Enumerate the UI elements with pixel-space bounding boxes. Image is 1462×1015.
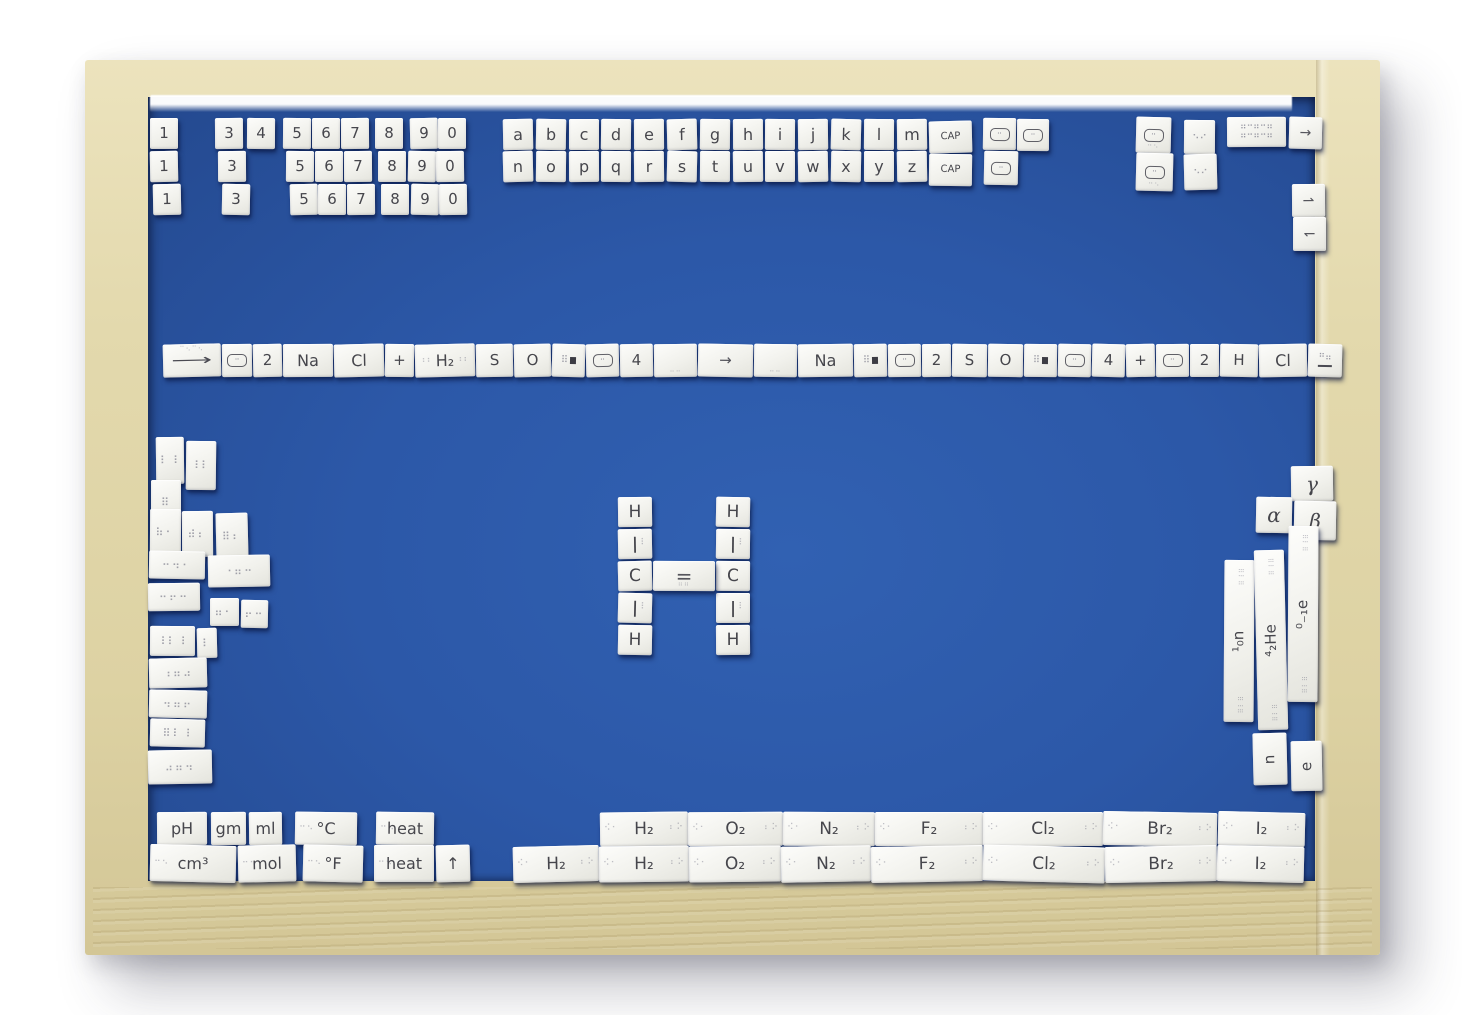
braille-tile[interactable]: ⠿⠆ <box>215 513 248 560</box>
tile-label: 8 <box>390 192 400 207</box>
tile-label: CAP <box>940 132 960 142</box>
equation-tile[interactable]: Cl <box>334 343 385 377</box>
tile-label: ml <box>255 820 275 836</box>
particle-tile[interactable]: n <box>1252 733 1287 786</box>
equation-tile[interactable]: ⠒ <box>1058 344 1092 378</box>
braille-chemistry-board-photo: 1345678901356789013567890abcdefghijklmno… <box>0 0 1462 1015</box>
particle-tile[interactable]: e <box>1291 741 1323 792</box>
unit-tile[interactable]: heat⠒⠢ <box>376 812 434 846</box>
tile-label: α <box>1267 505 1281 525</box>
letter-tile[interactable]: n <box>503 151 534 183</box>
letter-tile[interactable]: x <box>831 151 862 183</box>
equation-tile[interactable]: H₂⠰⠆⠰⠆ <box>415 343 476 377</box>
equation-tile[interactable]: 4 <box>1092 344 1126 378</box>
braille-dots: ⠪⠂ <box>1222 823 1237 833</box>
equation-tile[interactable]: ⠤⠤ <box>654 344 697 378</box>
unit-tile[interactable]: cm³⠒⠢ <box>150 844 237 883</box>
equation-tile[interactable]: ⠒ <box>888 344 921 377</box>
symbol-tile[interactable]: ↽ <box>1293 217 1326 251</box>
tile-label: H₂ <box>546 855 566 872</box>
braille-tile[interactable]: ⠾⠆ <box>182 511 213 557</box>
unit-tile[interactable]: ml <box>249 812 282 845</box>
tile-label: H <box>628 631 641 648</box>
braille-dots: ⠇ <box>738 539 746 549</box>
tile-label: gm <box>216 820 242 836</box>
braille-tile[interactable]: ⠷⠂ <box>150 509 181 555</box>
tile-label: 0 <box>448 192 458 207</box>
letter-tile[interactable]: o <box>536 151 566 182</box>
molecule-tile[interactable]: O₂⠪⠂⠆⠕ <box>688 812 783 847</box>
number-tile[interactable]: 8 <box>378 151 406 182</box>
isotope-tile[interactable]: ⁴₂He⠿⠇⠿⠿⠸⠿ <box>1254 550 1288 731</box>
unit-tile[interactable]: °C⠒⠢ <box>295 812 357 846</box>
braille-dots: ⠆⠕ <box>852 858 867 868</box>
tile-label: 1 <box>159 159 169 174</box>
unit-tile[interactable]: mol⠒⠢ <box>238 844 297 882</box>
unit-tile[interactable]: °F⠒⠢ <box>303 844 364 882</box>
structure-tile[interactable]: C <box>716 561 750 591</box>
braille-dots: ⠆⠕ <box>1286 825 1301 835</box>
tile-label: k <box>841 126 851 142</box>
number-tile[interactable]: 5 <box>286 151 314 182</box>
tile-label: heat <box>386 856 422 872</box>
equation-tile[interactable]: S <box>952 344 987 377</box>
cap-tile[interactable]: CAP <box>929 120 973 153</box>
number-tile[interactable]: 3 <box>222 184 251 216</box>
tile-label: Na <box>815 352 837 368</box>
braille-dots: ⠿⠇⠿ <box>1300 534 1308 552</box>
number-tile[interactable]: 5 <box>283 118 311 149</box>
tile-label: t <box>712 158 718 174</box>
molecule-tile[interactable]: Cl₂⠪⠂⠆⠕ <box>983 812 1103 846</box>
equation-tile[interactable]: ⠿ <box>552 344 586 378</box>
braille-dots: ⠪⠂ <box>517 860 532 870</box>
letter-tile[interactable]: f <box>667 119 698 151</box>
symbol-tile[interactable]: ⠶⠒⠶⠒⠶ ⠶⠒⠶⠒⠶ <box>1227 117 1286 147</box>
number-tile[interactable]: 8 <box>375 118 403 149</box>
tile-label: 7 <box>353 159 363 174</box>
number-tile[interactable]: 4 <box>247 118 275 149</box>
equation-tile[interactable]: + <box>1126 344 1156 378</box>
braille-dots: ⠪⠂ <box>692 824 707 834</box>
number-tile[interactable]: 1 <box>150 118 178 149</box>
tile-label: I₂ <box>1254 855 1266 872</box>
number-tile[interactable]: 9 <box>408 151 437 183</box>
braille-tile[interactable]: ⠇ <box>197 628 218 658</box>
tile-label: d <box>611 126 621 142</box>
letter-tile[interactable]: c <box>569 119 599 150</box>
molecule-tile[interactable]: N₂⠪⠂⠆⠕ <box>781 845 872 883</box>
symbol-tile[interactable]: ⠒⠒⠢ <box>1136 153 1174 192</box>
number-tile[interactable]: 9 <box>410 118 439 150</box>
filled-square-symbol <box>570 357 576 364</box>
letter-tile[interactable]: s <box>667 151 698 183</box>
molecule-tile[interactable]: I₂⠪⠂⠆⠕ <box>1218 811 1306 847</box>
letter-tile[interactable]: d <box>601 119 631 150</box>
equation-tile[interactable]: H <box>1220 344 1259 378</box>
braille-dots: ⠪⠂ <box>879 824 894 834</box>
number-tile[interactable]: 7 <box>347 184 375 215</box>
tile-label: e <box>1299 761 1314 771</box>
symbol-tile[interactable]: ⠢⠔ <box>1184 154 1218 191</box>
equation-tile[interactable]: ⠿ <box>854 344 888 378</box>
tile-label: H₂ <box>634 855 654 872</box>
tile-label: N₂ <box>819 820 839 837</box>
letter-tile[interactable]: q <box>601 151 631 182</box>
tile-label: ⠖⠒ <box>244 608 264 619</box>
tile-label: ⠶⠒⠶⠒⠶ ⠶⠒⠶⠒⠶ <box>1240 123 1273 141</box>
tile-label: ⠿ <box>161 497 171 508</box>
equation-tile[interactable]: O <box>988 344 1023 377</box>
tile-label: ⠿ <box>1033 355 1040 365</box>
braille-dots: ⠆⠕ <box>1198 825 1213 835</box>
braille-tile[interactable]: ⠰⠶⠴ <box>149 657 208 688</box>
tile-label: ⠲⠶⠖ <box>163 698 193 710</box>
tile-label: ⠿⠇⠸ <box>162 727 192 739</box>
tile-label: γ <box>1306 473 1318 493</box>
tile-label: z <box>908 158 917 174</box>
braille-tile[interactable]: ⠒⠖⠒ <box>148 583 200 612</box>
symbol-tile[interactable]: ⠒⠒⠢ <box>1136 117 1172 154</box>
molecule-tile[interactable]: N₂⠪⠂⠆⠕ <box>783 812 875 847</box>
tile-label: 3 <box>224 126 234 141</box>
tile-label: 4 <box>1104 353 1114 368</box>
tile-label: H <box>1233 353 1245 368</box>
equation-tile[interactable]: ⠒ <box>586 344 620 378</box>
structure-tile[interactable]: H <box>618 625 653 656</box>
braille-tile[interactable]: ⠴⠶⠲ <box>148 749 213 784</box>
number-tile[interactable]: 6 <box>315 151 343 182</box>
braille-dots: ⠆⠕ <box>964 824 979 834</box>
number-tile[interactable]: 3 <box>215 118 243 149</box>
tile-label: ⁰₋₁e <box>1295 599 1310 628</box>
tile-label: ¹₀n <box>1231 630 1246 652</box>
letter-tile[interactable]: a <box>503 119 534 151</box>
braille-dots: ⠒⠢ <box>1148 181 1160 189</box>
braille-tile[interactable]: ⠇⠸ <box>156 437 185 484</box>
letter-tile[interactable]: k <box>831 119 862 151</box>
equation-tile[interactable]: 4 <box>620 344 654 378</box>
braille-dots: ⠇ <box>738 603 746 613</box>
tile-label: O₂ <box>725 855 745 872</box>
tile-label: ⠇ <box>202 637 212 648</box>
braille-dots: ⠰⠆ <box>456 355 471 365</box>
isotope-tile[interactable]: ¹₀n⠿⠇⠿⠿⠸⠿ <box>1224 560 1255 722</box>
letter-tile[interactable]: l <box>864 119 894 150</box>
tile-label: w <box>806 158 819 174</box>
number-tile[interactable]: 6 <box>318 184 346 215</box>
symbol-tile[interactable]: ⠒ <box>984 151 1019 186</box>
tile-label: = <box>676 566 693 586</box>
braille-tile[interactable]: ⠸⠇ <box>186 441 217 490</box>
rounded-rect-symbol: ⠒ <box>1162 354 1182 367</box>
number-tile[interactable]: 1 <box>150 151 179 183</box>
tile-label: | <box>730 600 736 616</box>
tile-label: l <box>877 126 882 142</box>
tile-label: °C <box>316 820 335 836</box>
structure-tile[interactable]: |⠇ <box>716 529 750 559</box>
tile-label: q <box>611 158 621 174</box>
symbol-tile[interactable]: ⠒ <box>1017 119 1049 151</box>
equation-tile[interactable]: Na <box>798 344 853 378</box>
tile-label: S <box>965 353 975 368</box>
equation-tile[interactable]: + <box>385 344 414 377</box>
braille-dots: ⠪⠂ <box>987 824 1002 834</box>
braille-dots: ⠆⠕ <box>762 859 777 869</box>
equation-tile[interactable]: Cl <box>1259 344 1308 378</box>
braille-tile[interactable]: ⠿⠇⠸ <box>150 718 206 747</box>
tile-label: 6 <box>321 126 331 141</box>
rounded-rect-symbol: ⠒ <box>1144 165 1164 178</box>
unit-tile[interactable]: ↑ <box>436 845 471 883</box>
tile-label: p <box>579 158 589 174</box>
tile-label: C <box>629 567 641 584</box>
tile-label: O <box>526 353 538 368</box>
tile-label: ⠰⠶⠴ <box>163 667 193 679</box>
tile-label: + <box>1134 353 1147 368</box>
braille-dots: ⠆⠕ <box>580 858 595 868</box>
letter-tile[interactable]: p <box>569 151 599 182</box>
tile-label: °F <box>324 855 342 871</box>
braille-dots: ⠪⠂ <box>604 824 619 834</box>
tile-label: g <box>710 126 720 142</box>
tile-label: Cl₂ <box>1032 855 1056 873</box>
braille-dots: ⠇ <box>640 539 648 549</box>
letter-tile[interactable]: z <box>897 151 928 183</box>
light-reflection-strip <box>150 95 1292 112</box>
tile-label: ⠛⠶ <box>1318 354 1332 367</box>
tile-label: 5 <box>292 126 302 141</box>
braille-dots: ⠒⠢ <box>307 858 322 868</box>
tile-label: a <box>513 126 523 142</box>
rounded-rect-symbol: ⠒ <box>1143 128 1163 141</box>
structure-tile[interactable]: H <box>716 625 750 655</box>
tile-label: o <box>546 158 556 174</box>
tile-label: u <box>743 158 753 174</box>
braille-dots: ⠪⠂ <box>785 860 800 870</box>
tile-label: 0 <box>445 159 455 174</box>
tile-label: ↽ <box>1304 227 1316 241</box>
letter-tile[interactable]: w <box>798 151 829 183</box>
tile-label: 4 <box>256 126 266 141</box>
braille-dots: ⠪⠂ <box>693 859 708 869</box>
letter-tile[interactable]: b <box>536 119 567 151</box>
number-tile[interactable]: 0 <box>439 184 467 215</box>
tile-label: ⠒⠖⠒ <box>159 591 189 602</box>
number-tile[interactable]: 3 <box>218 151 246 182</box>
braille-dots: ⠿⠇⠿ <box>1235 568 1243 586</box>
braille-tile[interactable]: ⠐⠶⠒ <box>208 554 271 587</box>
braille-dots: ⠿⠸⠿ <box>1235 696 1243 714</box>
braille-dots: ⠆⠕ <box>670 859 685 869</box>
tile-label: 3 <box>227 159 237 174</box>
tile-label: 1 <box>162 192 172 207</box>
equation-tile[interactable]: ⠒ <box>222 344 252 377</box>
equation-tile[interactable]: Na <box>283 344 333 377</box>
tile-label: Na <box>297 352 319 368</box>
filled-square-symbol <box>872 357 878 364</box>
letter-tile[interactable]: i <box>765 119 795 150</box>
letter-tile[interactable]: y <box>864 151 894 182</box>
tile-label: n <box>513 158 524 174</box>
tile-label: mol <box>252 855 282 872</box>
equation-tile[interactable]: ⠛⠶ <box>1308 344 1343 378</box>
equation-tile[interactable]: 2 <box>1190 344 1219 377</box>
braille-dots: ⠿⠇⠿ <box>1265 558 1273 577</box>
tile-label: 9 <box>419 126 429 141</box>
molecule-tile[interactable]: H₂⠪⠂⠆⠕ <box>600 811 688 846</box>
molecule-tile[interactable]: H₂⠪⠂⠆⠕ <box>513 845 600 883</box>
braille-tile[interactable]: ⠒⠲⠂ <box>149 550 206 579</box>
tile-label: j <box>811 126 816 142</box>
tile-label: ⠐⠶⠒ <box>224 565 254 577</box>
isotope-tile[interactable]: ⁰₋₁e⠿⠇⠿⠿⠸⠿ <box>1287 526 1318 702</box>
braille-tile[interactable]: ⠖⠒ <box>241 600 269 628</box>
number-tile[interactable]: 1 <box>153 184 182 216</box>
rounded-rect-symbol: ⠒ <box>991 161 1011 174</box>
tile-label: ⠒⠲⠂ <box>162 559 192 571</box>
unit-tile[interactable]: gm <box>211 812 246 845</box>
letter-tile[interactable]: t <box>700 151 730 182</box>
tile-label: c <box>580 127 589 143</box>
number-tile[interactable]: 8 <box>381 184 409 215</box>
number-tile[interactable]: 7 <box>341 118 369 149</box>
braille-tile[interactable]: ⠲⠶⠖ <box>149 689 208 718</box>
braille-dots: ⠆⠕ <box>1285 860 1300 870</box>
tile-label: H <box>628 503 641 520</box>
tile-label: s <box>678 158 687 174</box>
tile-label: ⠷⠂ <box>155 526 175 537</box>
tile-label: H <box>726 503 739 520</box>
letter-tile[interactable]: h <box>733 119 763 150</box>
braille-dots: ⠆⠕ <box>669 824 684 834</box>
braille-dots: ⠰⠆ <box>419 356 434 366</box>
structure-tile[interactable]: H <box>716 497 751 528</box>
braille-dots: ⠒⠢ <box>154 858 169 868</box>
tile-label: 9 <box>417 159 427 174</box>
unit-tile[interactable]: pH <box>157 812 207 845</box>
tile-label: F₂ <box>919 855 936 872</box>
tile-label: 8 <box>387 159 397 174</box>
tile-label: ⠿⠆ <box>222 530 242 541</box>
tile-label: ⠿ <box>561 355 569 365</box>
rounded-rect-symbol: ⠒ <box>894 354 914 367</box>
molecule-tile[interactable]: F₂⠪⠂⠆⠕ <box>875 812 983 846</box>
cap-tile[interactable]: CAP <box>929 154 972 187</box>
structure-tile[interactable]: C <box>618 561 653 592</box>
braille-dots: ⠒⠢ <box>1147 143 1159 151</box>
unit-tile[interactable]: heat⠒⠢ <box>374 845 434 882</box>
tile-label: | <box>632 536 638 552</box>
molecule-tile[interactable]: H₂⠪⠂⠆⠕ <box>599 845 689 882</box>
tile-label: CAP <box>941 165 961 175</box>
equation-tile[interactable]: 2 <box>922 344 951 377</box>
braille-dots: ⠆⠕ <box>1084 824 1099 834</box>
equation-tile[interactable]: O <box>514 344 552 378</box>
structure-tile[interactable]: H <box>618 497 652 527</box>
number-tile[interactable]: 9 <box>411 184 440 216</box>
letter-tile[interactable]: g <box>700 119 730 150</box>
equation-tile[interactable]: S <box>476 344 514 378</box>
tile-label: N₂ <box>816 855 836 872</box>
braille-dots: ⠆⠕ <box>1086 860 1101 870</box>
tile-label: ⠿ <box>863 356 871 366</box>
molecule-tile[interactable]: I₂⠪⠂⠆⠕ <box>1217 845 1305 883</box>
greek-tile[interactable]: γ <box>1291 466 1333 502</box>
structure-tile[interactable]: |⠇ <box>716 593 750 623</box>
tile-label: | <box>632 600 638 616</box>
equation-tile[interactable]: → <box>698 343 754 377</box>
tile-label: f <box>679 126 685 142</box>
tile-label: 5 <box>299 192 309 207</box>
braille-dots: ⠆⠕ <box>764 824 779 834</box>
letter-tile[interactable]: m <box>897 119 927 150</box>
tile-label: 3 <box>231 192 241 207</box>
molecule-tile[interactable]: F₂⠪⠂⠆⠕ <box>871 845 984 883</box>
number-tile[interactable]: 0 <box>436 151 464 182</box>
structure-tile[interactable]: |⠇ <box>618 593 653 624</box>
number-tile[interactable]: 6 <box>312 118 340 149</box>
structure-tile[interactable]: |⠇ <box>618 529 653 560</box>
tile-label: v <box>775 159 784 175</box>
rounded-rect-symbol: ⠒ <box>227 354 247 367</box>
symbol-tile[interactable]: ⠒ <box>983 118 1016 150</box>
tile-label: 1 <box>159 126 169 141</box>
tile-label: heat <box>387 820 423 836</box>
braille-dots: ⠿⠸⠿ <box>1299 676 1307 694</box>
tile-label: 0 <box>447 126 457 141</box>
letter-tile[interactable]: v <box>765 151 795 182</box>
letter-tile[interactable]: r <box>634 151 664 182</box>
equation-tile[interactable]: ⠿ <box>1024 344 1057 377</box>
braille-dots: ⠆⠕ <box>964 858 979 868</box>
braille-tile[interactable]: ⠶⠂ <box>210 598 239 626</box>
structure-tile[interactable]: =⠶⠶ <box>653 561 715 591</box>
letter-tile[interactable]: e <box>634 119 664 150</box>
equation-tile[interactable]: ⠉⠢⠉⠢⟶ <box>163 343 222 377</box>
tile-label: C <box>727 567 739 584</box>
tile-label: 8 <box>384 126 394 141</box>
molecule-tile[interactable]: Br₂⠪⠂⠆⠕ <box>1105 845 1218 883</box>
tile-label: Br₂ <box>1148 855 1174 872</box>
braille-dots: ⠪⠂ <box>875 860 890 870</box>
molecule-tile[interactable]: Cl₂⠪⠂⠆⠕ <box>983 845 1106 884</box>
symbol-tile[interactable]: ⇀ <box>1292 184 1325 217</box>
equation-tile[interactable]: ⠤⠤ <box>754 344 797 378</box>
symbol-tile[interactable]: → <box>1289 117 1323 150</box>
number-tile[interactable]: 5 <box>290 184 319 216</box>
molecule-tile[interactable]: O₂⠪⠂⠆⠕ <box>689 845 781 882</box>
greek-tile[interactable]: α <box>1256 497 1293 534</box>
number-tile[interactable]: 0 <box>438 118 466 149</box>
tile-label: I₂ <box>1255 820 1267 837</box>
molecule-tile[interactable]: Br₂⠪⠂⠆⠕ <box>1103 811 1218 847</box>
letter-tile[interactable]: j <box>798 119 828 150</box>
tile-label: ⠾⠆ <box>187 528 207 539</box>
tile-label: 9 <box>420 192 430 207</box>
braille-dots: ⠇ <box>640 603 648 613</box>
symbol-tile[interactable]: ⠢⠔ <box>1184 120 1215 154</box>
rounded-rect-symbol: ⠒ <box>592 354 612 367</box>
equation-tile[interactable]: 2 <box>253 344 283 378</box>
braille-dots: ⠪⠂ <box>1107 823 1122 833</box>
tile-label: F₂ <box>921 821 938 838</box>
letter-tile[interactable]: u <box>733 151 763 182</box>
braille-tile[interactable]: ⠸⠇⠸ <box>150 626 195 656</box>
tile-label: pH <box>171 820 193 836</box>
number-tile[interactable]: 7 <box>344 151 372 182</box>
equation-tile[interactable]: ⠒ <box>1156 344 1189 377</box>
